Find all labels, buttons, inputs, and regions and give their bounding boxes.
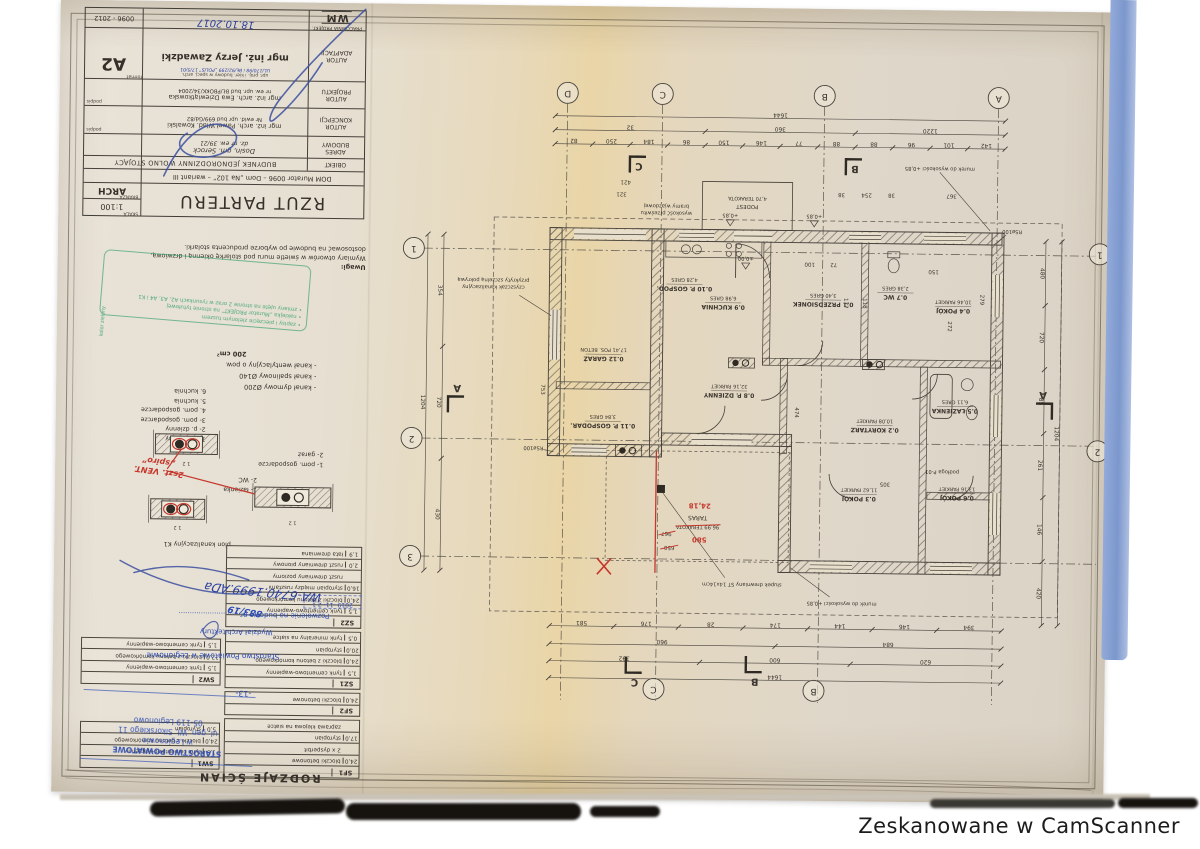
paper-crease xyxy=(65,770,1091,791)
pen-signature xyxy=(164,124,237,177)
camscanner-credit: Zeskanowane w CamScanner xyxy=(858,814,1180,838)
desk-shadow-blob xyxy=(1118,798,1198,808)
red-leader xyxy=(167,449,181,469)
camscanner-scan-view: 0096 - 201218.10.2017PRACOWNIA PROJEKT.W… xyxy=(0,0,1200,849)
desk-shadow-blob xyxy=(590,806,660,817)
desk-shadow-blob xyxy=(930,799,1115,808)
pen-signature xyxy=(120,560,262,594)
ink-overlay xyxy=(51,0,1113,804)
pen-signature xyxy=(270,8,366,122)
red-leader xyxy=(167,471,255,494)
pen-signature xyxy=(203,621,218,638)
desk-shadow-blob xyxy=(150,798,345,816)
scanned-sheet: 0096 - 201218.10.2017PRACOWNIA PROJEKT.W… xyxy=(51,0,1113,804)
desk-shadow-blob xyxy=(346,803,581,820)
